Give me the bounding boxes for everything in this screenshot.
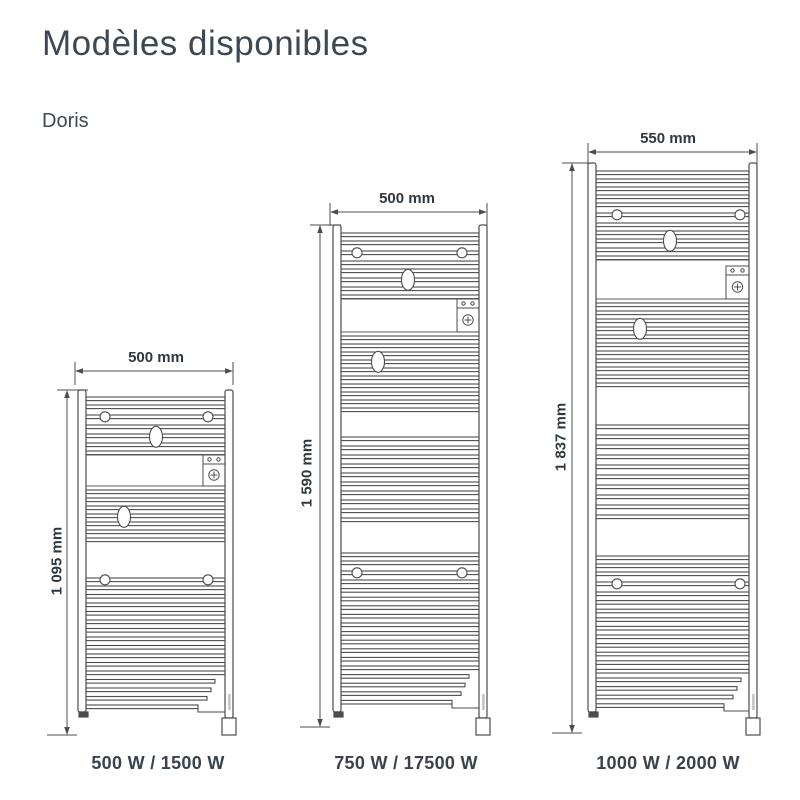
radiator-tube xyxy=(341,392,479,396)
radiator-tube xyxy=(596,256,749,260)
model-family-name: Doris xyxy=(42,110,89,133)
radiator-tube xyxy=(341,464,479,468)
radiator-tube xyxy=(596,592,749,596)
radiator-tube xyxy=(341,344,479,348)
radiator-diagram xyxy=(542,123,777,753)
radiator-tube xyxy=(86,646,225,650)
hanger-knob xyxy=(402,269,415,290)
radiator-tube xyxy=(86,490,225,494)
wall-bracket xyxy=(203,575,213,585)
heating-element-box xyxy=(476,718,490,735)
radiator-tube xyxy=(596,171,749,175)
radiator-diagram xyxy=(295,183,505,748)
radiator-tube xyxy=(341,491,479,495)
radiator-tube xyxy=(341,597,479,601)
radiator-tube xyxy=(341,666,479,670)
heating-element-box xyxy=(222,718,236,735)
wall-foot xyxy=(79,712,88,717)
height-dimension-line xyxy=(552,163,593,733)
wall-bracket xyxy=(100,412,110,422)
hanger-knob xyxy=(664,230,677,251)
wall-bracket xyxy=(612,210,622,220)
wall-bracket xyxy=(457,248,467,258)
radiator-tube xyxy=(86,506,225,510)
radiator-tube xyxy=(596,465,749,469)
wall-bracket xyxy=(100,575,110,585)
radiator-tube xyxy=(341,360,479,364)
radiator-tube xyxy=(86,498,225,502)
brand-mark xyxy=(752,694,754,710)
width-dimension-line xyxy=(588,143,757,166)
radiator-tube xyxy=(596,435,749,439)
radiator-tube xyxy=(86,538,225,542)
wall-foot xyxy=(334,712,343,717)
radiator-tube xyxy=(86,663,225,667)
radiator-rail-right xyxy=(749,163,757,718)
radiator-tube xyxy=(596,311,749,315)
radiator-tube xyxy=(86,522,225,526)
wall-bracket xyxy=(352,568,362,578)
radiator-tube xyxy=(596,695,733,699)
radiator-tube xyxy=(596,187,749,191)
radiator-tube xyxy=(341,692,461,696)
radiator-tube xyxy=(341,368,479,372)
radiator-tube xyxy=(596,626,749,630)
hanger-knob xyxy=(634,318,647,339)
radiator-tube xyxy=(341,580,479,584)
radiator-tube xyxy=(596,618,749,622)
radiator-tube xyxy=(596,572,749,576)
brand-mark xyxy=(482,694,484,710)
radiator-tube xyxy=(86,451,225,455)
radiator-tube xyxy=(596,455,749,459)
power-rating-label: 750 W / 17500 W xyxy=(334,753,478,774)
radiator-tube xyxy=(341,561,479,565)
wall-bracket xyxy=(612,579,622,589)
models-page: Modèles disponibles Doris 500 mm 1 095 m… xyxy=(0,0,800,800)
led-dots-icon xyxy=(741,269,744,272)
radiator-tube xyxy=(86,514,225,518)
radiator-tube xyxy=(86,671,225,675)
radiator-tube xyxy=(596,375,749,379)
radiator-rail-left xyxy=(333,225,341,712)
radiator-tube xyxy=(596,515,749,519)
radiator-tube xyxy=(596,425,749,429)
radiator-tube xyxy=(596,678,741,682)
radiator-tube xyxy=(341,384,479,388)
radiator-tube xyxy=(86,595,225,599)
radiator-tube xyxy=(341,606,479,610)
radiator-tube xyxy=(341,295,479,299)
radiator-tube xyxy=(341,376,479,380)
radiator-tube xyxy=(86,697,207,701)
radiator-tube xyxy=(341,589,479,593)
radiator-tube xyxy=(86,612,225,616)
radiator-tube xyxy=(341,473,479,477)
radiator-rail-left xyxy=(78,390,86,712)
radiator-tube xyxy=(596,635,749,639)
radiator-tube xyxy=(596,564,749,568)
radiator-tube xyxy=(341,675,469,679)
radiator-tube xyxy=(86,586,225,590)
radiator-tube xyxy=(596,661,749,665)
radiator-tube xyxy=(596,223,749,227)
hanger-knob xyxy=(150,426,163,447)
control-panel-icon xyxy=(203,455,225,486)
radiator-tube xyxy=(341,455,479,459)
heating-element-box xyxy=(746,718,760,735)
radiator-tube xyxy=(341,437,479,441)
radiator-tube xyxy=(596,652,749,656)
power-rating-label: 500 W / 1500 W xyxy=(91,753,224,774)
radiator-tube xyxy=(596,505,749,509)
wall-bracket xyxy=(203,412,213,422)
radiator-tube xyxy=(596,669,749,673)
radiator-tube xyxy=(596,687,737,691)
radiator-tube xyxy=(86,637,225,641)
radiator-tube xyxy=(341,632,479,636)
radiator-tube xyxy=(596,383,749,387)
radiator-tube xyxy=(596,359,749,363)
radiator-tube xyxy=(341,336,479,340)
radiator-tube xyxy=(341,657,479,661)
hanger-knob xyxy=(372,351,385,372)
radiator-diagram xyxy=(40,338,250,748)
radiator-tube xyxy=(596,179,749,183)
radiator-tube xyxy=(341,352,479,356)
radiator-tube xyxy=(596,335,749,339)
radiator-tube xyxy=(341,640,479,644)
radiator-tube xyxy=(86,705,198,709)
radiator-tube xyxy=(341,700,452,704)
radiator-tube xyxy=(86,629,225,633)
radiator-tube xyxy=(596,485,749,489)
radiator-tube xyxy=(341,509,479,513)
radiator-tube xyxy=(86,530,225,534)
radiator-tube xyxy=(596,445,749,449)
radiator-tube xyxy=(341,500,479,504)
radiator-tube xyxy=(596,495,749,499)
radiator-tube xyxy=(596,644,749,648)
radiator-rail-left xyxy=(588,163,596,712)
led-dots-icon xyxy=(731,269,734,272)
radiator-tube xyxy=(341,482,479,486)
width-dimension-line xyxy=(75,362,233,385)
wall-bracket xyxy=(352,248,362,258)
led-dots-icon xyxy=(208,458,211,461)
radiator-tube xyxy=(341,241,479,245)
radiator-tube xyxy=(596,367,749,371)
radiator-tube xyxy=(341,623,479,627)
radiator-tube xyxy=(86,620,225,624)
radiator-rail-right xyxy=(479,225,487,718)
radiator-tube xyxy=(341,408,479,412)
radiator-tube xyxy=(596,704,724,708)
radiator-tube xyxy=(596,343,749,347)
radiator-tube xyxy=(341,649,479,653)
hanger-knob xyxy=(118,506,131,527)
radiator-rail-right xyxy=(225,390,233,718)
radiator-tube xyxy=(596,327,749,331)
radiator-tube xyxy=(596,303,749,307)
wall-bracket xyxy=(457,568,467,578)
radiator-tube xyxy=(341,400,479,404)
radiator-tube xyxy=(596,609,749,613)
wall-foot xyxy=(589,712,598,717)
radiator-tube xyxy=(596,475,749,479)
led-dots-icon xyxy=(217,458,220,461)
radiator-tube xyxy=(596,319,749,323)
radiator-tubes xyxy=(596,171,749,711)
wall-bracket xyxy=(735,210,745,220)
radiator-tube xyxy=(596,351,749,355)
radiator-tube xyxy=(86,680,215,684)
width-dimension-line xyxy=(330,203,487,226)
control-panel-icon xyxy=(726,266,749,299)
radiator-tube xyxy=(341,553,479,557)
radiator-tube xyxy=(341,683,465,687)
radiator-tube xyxy=(596,601,749,605)
radiator-tube xyxy=(596,203,749,207)
radiator-tube xyxy=(596,556,749,560)
radiator-tube xyxy=(341,261,479,265)
radiator-tube xyxy=(86,654,225,658)
radiator-tube xyxy=(86,405,225,409)
radiator-tube xyxy=(341,614,479,618)
radiator-tube xyxy=(341,446,479,450)
brand-mark xyxy=(228,694,230,710)
radiator-tube xyxy=(596,195,749,199)
radiator-tube xyxy=(341,518,479,522)
power-rating-label: 1000 W / 2000 W xyxy=(596,753,740,774)
radiator-tube xyxy=(86,397,225,401)
radiator-tube xyxy=(86,603,225,607)
led-dots-icon xyxy=(462,302,465,305)
radiator-tube xyxy=(86,688,211,692)
led-dots-icon xyxy=(471,302,474,305)
control-panel-icon xyxy=(457,299,479,332)
page-title: Modèles disponibles xyxy=(42,24,369,64)
radiator-tube xyxy=(341,233,479,237)
wall-bracket xyxy=(735,579,745,589)
